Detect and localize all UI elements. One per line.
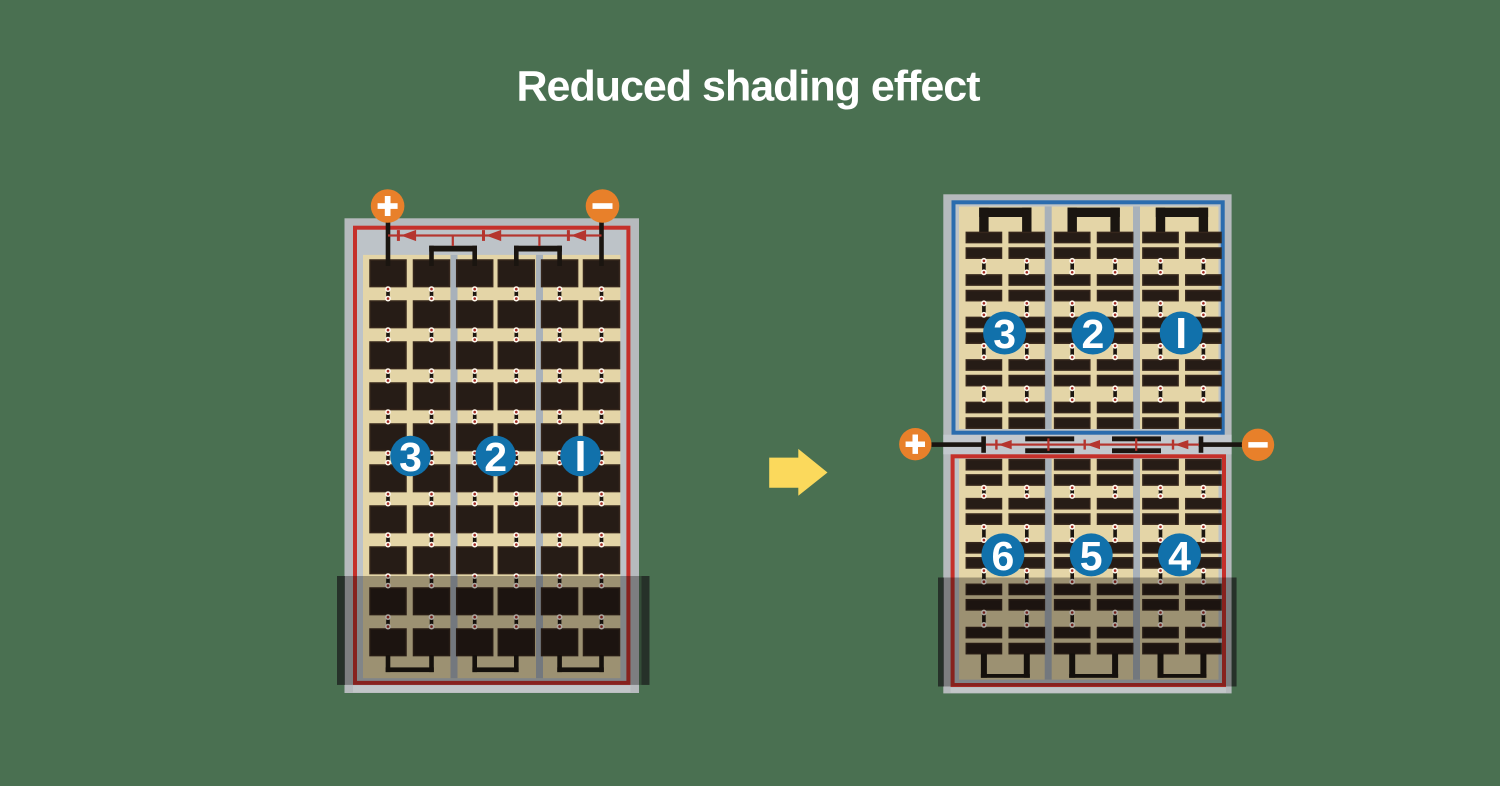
svg-text:3: 3	[993, 311, 1016, 357]
svg-text:2: 2	[484, 434, 507, 480]
svg-text:5: 5	[1080, 533, 1103, 579]
svg-text:Reduced shading effect: Reduced shading effect	[516, 63, 980, 111]
svg-text:6: 6	[991, 533, 1014, 579]
svg-text:3: 3	[399, 434, 422, 480]
svg-text:2: 2	[1081, 311, 1104, 357]
svg-text:4: 4	[1168, 533, 1191, 579]
